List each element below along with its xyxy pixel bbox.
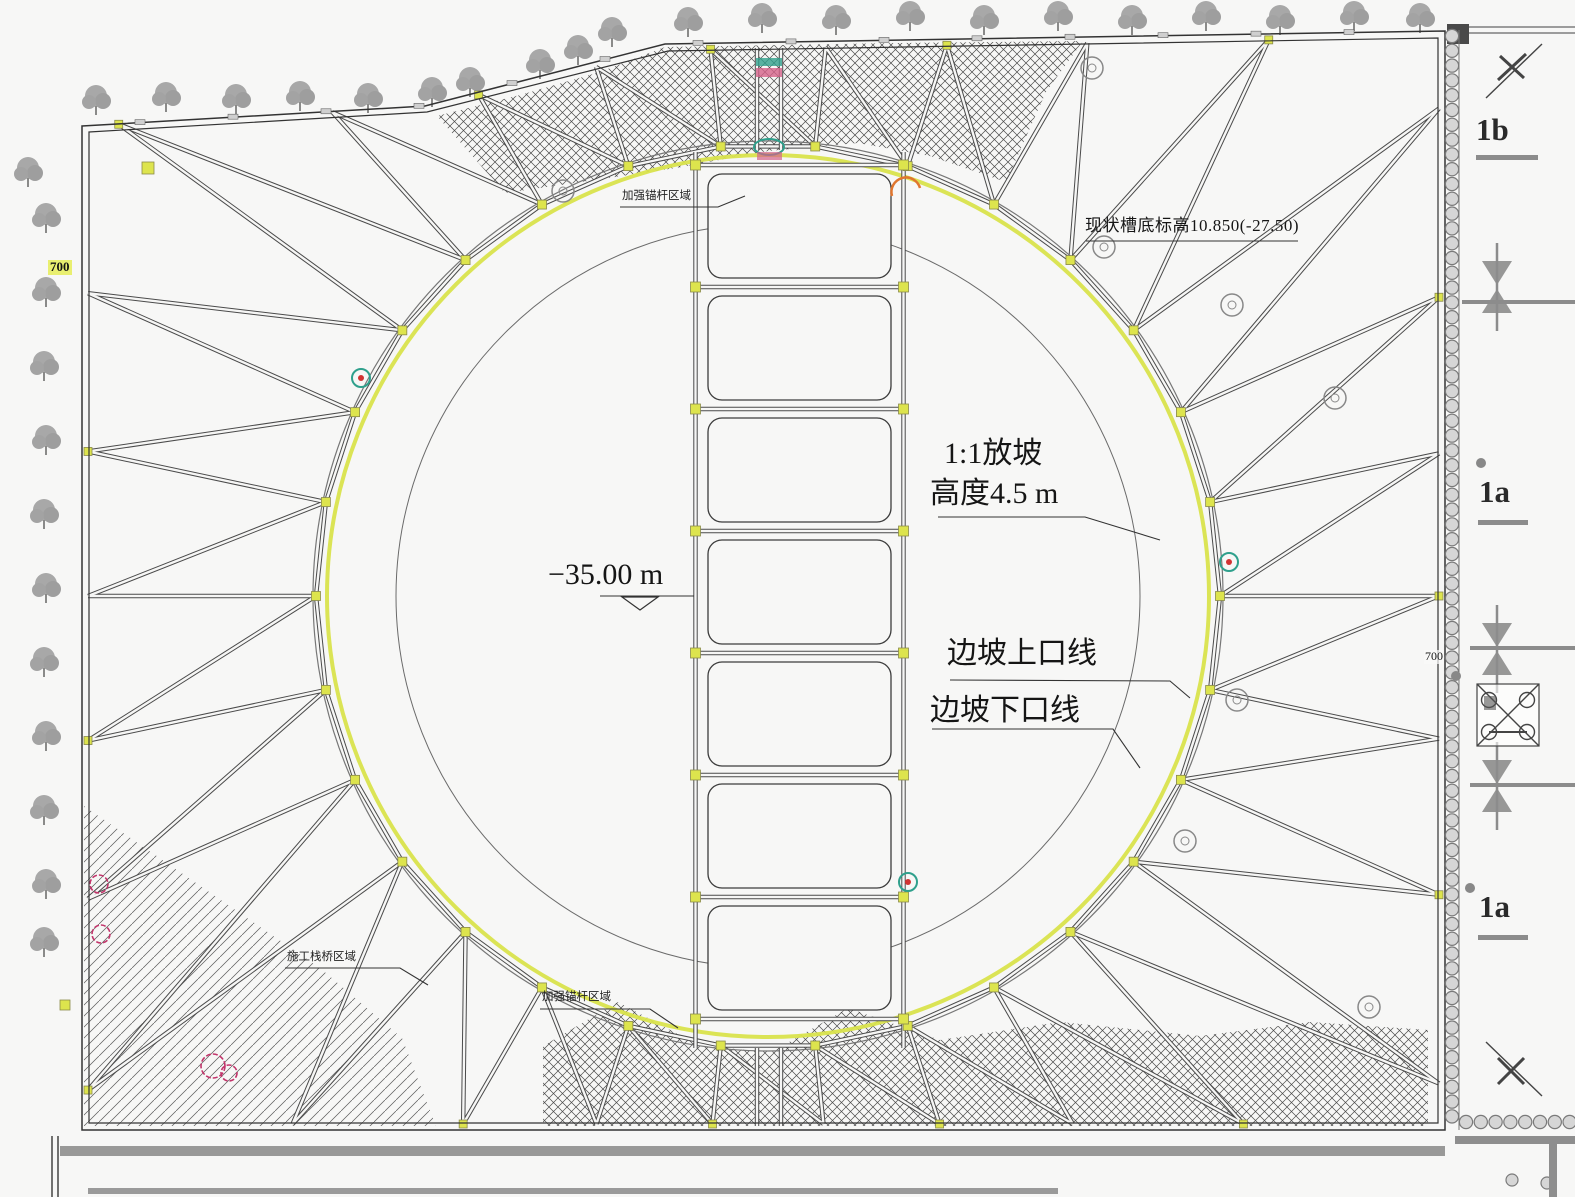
slope-height-label: 高度4.5 m (930, 477, 1058, 512)
central-trestle (696, 48, 904, 1126)
section-marker-1a-top: 1a (1479, 474, 1510, 510)
section-marker-1b: 1b (1476, 112, 1509, 148)
slope-ratio-label: 1:1放坡 (944, 437, 1042, 472)
drawing-canvas: 现状槽底标高10.850(-27.50) 1:1放坡 高度4.5 m −35.0… (0, 0, 1575, 1197)
anchor-zone-note-bottom: 加强锚杆区域 (542, 991, 611, 1004)
anchor-zone-note-top: 加强锚杆区域 (622, 190, 691, 203)
dimension-700-left: 700 (48, 260, 72, 275)
trestle-zone-note: 施工栈桥区域 (287, 951, 356, 964)
pit-depth-label: −35.00 m (548, 558, 663, 593)
slope-top-line-label: 边坡上口线 (947, 637, 1097, 672)
site-plan (0, 0, 1575, 1197)
section-marker-1a-bottom: 1a (1479, 889, 1510, 925)
slope-bottom-line-label: 边坡下口线 (930, 694, 1080, 729)
dimension-700-right: 700 (1424, 650, 1444, 664)
pile-wall (1445, 29, 1575, 1189)
trench-bottom-elevation-note: 现状槽底标高10.850(-27.50) (1085, 216, 1299, 236)
roads (60, 1136, 1575, 1197)
section-symbols (1451, 44, 1575, 1096)
